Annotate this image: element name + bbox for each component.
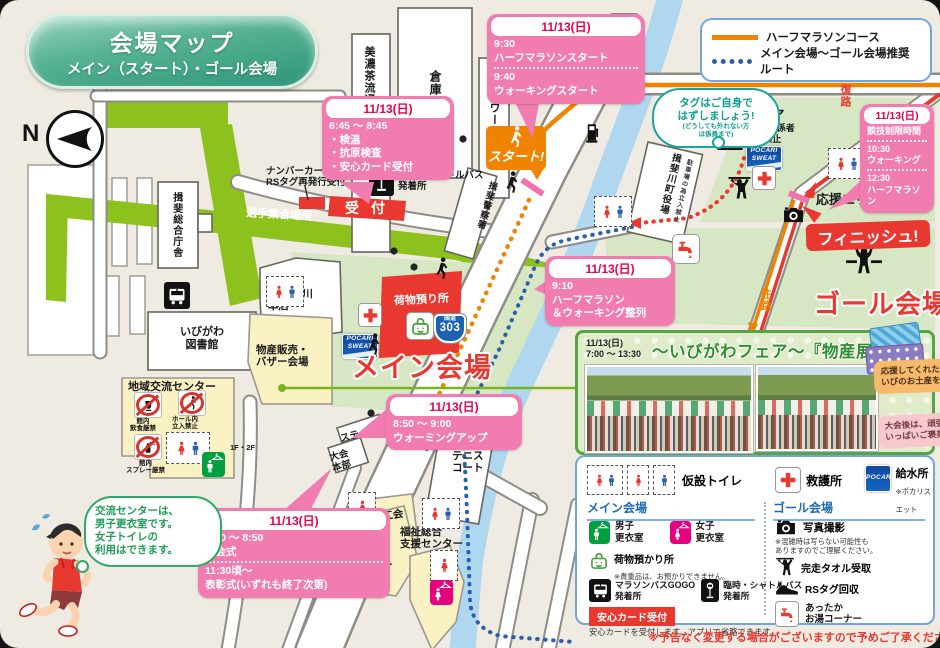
limit-time2: 12:30 (867, 173, 927, 185)
legend-aid-label: 救護所 (806, 472, 842, 489)
pocari-icon: POCARI SWEAT (865, 465, 891, 492)
callout-warmup-date: 11/13(日) (390, 397, 518, 416)
no-spray-icon (134, 434, 162, 460)
fair-photo-1 (585, 365, 753, 453)
finish-banner: フィニッシュ! (806, 220, 931, 251)
separator (205, 561, 383, 563)
start-banner-label: スタート! (488, 146, 544, 165)
page-title-main: 会場マップ (110, 24, 235, 58)
rule2b: 立入禁止 (172, 423, 198, 430)
tag-bubble-line2: はずしましょう! (663, 110, 769, 123)
baggage-map-icon (406, 312, 434, 340)
tennis-line2: コート (452, 462, 484, 474)
tennis-label: テニス コート (452, 450, 484, 475)
limit-event2: ハーフマラソン (867, 185, 927, 208)
route-number: 303 (436, 323, 464, 334)
callout-checkin: 11/13(日) 6:45 ～ 8:45 ・検温 ・抗原検査 ・安心カード受付 (322, 96, 454, 180)
toilet-man-icon (442, 503, 454, 525)
changing-bubble-line4: 利用はできます。 (95, 544, 211, 557)
fair-note-1: 応援してくれた家族や友達に いびのお土産を! (873, 357, 940, 394)
checkin-item3: ・安心カード受付 (329, 161, 447, 175)
photo-note-line2: ありますのでご理解ください。 (775, 546, 877, 555)
pocari-line1: POCARI (866, 474, 891, 481)
camera-legend-icon (775, 519, 797, 536)
no-entry-icon (178, 390, 206, 416)
fair-panel: 11/13(日) 7:00 ～ 13:30 ～いびがわフェア～『物産展』 応援し… (575, 330, 935, 455)
callout-start-times-body: 9:30 ハーフマラソンスタート 9:40 ウォーキングスタート (491, 36, 641, 99)
warmup-event: ウォーミングアップ (393, 432, 515, 446)
cup-glyph (135, 393, 161, 417)
library-line2: 図書館 (186, 339, 219, 351)
photo-note-line1: ※混雑時は写らない可能性も (775, 537, 869, 546)
faucet-glyph (676, 238, 696, 260)
legend-towel-label: 完走タオル受取 (801, 560, 871, 575)
toilet-woman-icon (627, 465, 649, 495)
mens-line1: 男子 (615, 521, 634, 532)
mens-changing-icon (589, 521, 610, 544)
fair-time: 7:00 ～ 13:30 (586, 349, 641, 359)
changing-bubble-line2: 男子更衣室です。 (95, 518, 211, 531)
red-cross-icon (756, 170, 773, 187)
goal-venue-title: ゴール会場 (814, 284, 940, 321)
library-line1: いびがわ (180, 326, 224, 338)
fair-note2-line1: 大会後は、頑張った自分に (884, 416, 940, 431)
lineup-time: 9:10 (552, 280, 668, 294)
changing-room-community (202, 452, 225, 477)
no-entry-label: ホール内 立入禁止 (172, 416, 198, 431)
spray-glyph (135, 435, 161, 459)
toilet-woman-icon (429, 503, 441, 525)
outbound-label: 往路 (758, 288, 771, 318)
callout-start-times-date: 11/13(日) (491, 17, 641, 36)
compass-arrow-icon (55, 124, 95, 154)
page-title-sub: メイン（スタート）・ゴール会場 (67, 58, 277, 79)
aid-station-main (358, 303, 382, 327)
separator (867, 140, 927, 142)
changing-bubble-dot (76, 560, 89, 573)
no-food-icon (134, 392, 162, 418)
no-food-label: 館内 飲食厳禁 (130, 418, 156, 433)
hot-line2: お湯コーナー (805, 614, 862, 625)
mens-line2: 更衣室 (615, 533, 644, 544)
rule2a: ホール内 (172, 416, 198, 423)
legend-photo-label: 写真撮影 (803, 520, 845, 535)
checkin-item1: ・検温 (329, 134, 447, 148)
callout-lineup-date: 11/13(日) (549, 259, 671, 278)
legend-towel-row: 完走タオル受取 (775, 557, 871, 578)
limit-event1: ウォーキング (867, 155, 927, 167)
lineup-event1: ハーフマラソン (552, 294, 668, 308)
tag-bubble-line1: タグはご自身で (663, 97, 769, 110)
legend-baggage-label: 荷物預かり所 (614, 551, 729, 566)
page-title: 会場マップ メイン（スタート）・ゴール会場 (26, 13, 318, 89)
aid-icon (775, 467, 801, 493)
community-floors-label: 1F・2F (230, 444, 255, 453)
shoe-legend-icon (775, 581, 799, 596)
tag-bubble-note1: (どうしても外れない方 (663, 123, 769, 131)
callout-ceremony-date: 11/13(日) (202, 511, 386, 530)
walker-icon-start (502, 170, 522, 195)
runner-icon (505, 126, 527, 148)
legend-photo-row: 写真撮影 (775, 519, 845, 536)
toilet-man-icon (286, 281, 298, 303)
legend-toilet-label: 仮設トイレ (682, 472, 742, 489)
pocari-line1: POCARI (747, 147, 781, 155)
gas-station-icon (585, 122, 601, 143)
start-event2: ウォーキングスタート (494, 85, 638, 99)
marathon-bus-icon (589, 579, 611, 602)
rule3b: スプレー厳禁 (126, 467, 165, 474)
callout-limit-body: 競技制限時間 10:30 ウォーキング 12:30 ハーフマラソン (864, 124, 930, 208)
fair-photo-2 (756, 365, 878, 451)
red-cross-icon (362, 307, 379, 324)
womens-line1: 女子 (696, 521, 715, 532)
recommended-route-label: メイン会場～ゴール会場推奨ルート (760, 45, 920, 77)
bussan-line1: 物産販売・ (256, 344, 309, 356)
toilet-woman-icon (601, 201, 613, 223)
compass-n-label: N (22, 120, 39, 148)
fair-date: 11/13(日) (586, 338, 623, 348)
womens-changing-icon (670, 521, 691, 544)
hanger-icon (211, 453, 224, 461)
legend-toilet-row: 仮設トイレ (587, 465, 742, 495)
legend-hot-label: あったか お湯コーナー (805, 603, 862, 626)
legend-mens-label: 男子 更衣室 (615, 521, 644, 544)
no-spray-label: 館内 スプレー厳禁 (126, 460, 165, 475)
fair-note2-line2: いっぱいご褒美を (885, 429, 940, 443)
fair-note1-line1: 応援してくれた家族や友達に (881, 362, 940, 376)
callout-checkin-date: 11/13(日) (326, 99, 450, 118)
shuttle-stop-legend-icon (701, 579, 719, 602)
tennis-line1: テニス (452, 450, 484, 462)
walker-glyph (179, 391, 205, 415)
legend-goal-heading-row: ゴール会場 (773, 499, 925, 521)
reception-banner: 受付 (345, 200, 397, 217)
toilet-yakuba (594, 196, 632, 227)
towel-person-icon (727, 176, 752, 202)
changing-room-fukushi (430, 580, 453, 605)
shuttle-line2: 発着所 (398, 181, 427, 192)
callout-warmup: 11/13(日) 8:50 ～ 9:00 ウォーミングアップ (386, 394, 522, 450)
card-badge: 安心カード受付 (589, 607, 675, 626)
callout-limit: 11/13(日) 競技制限時間 10:30 ウォーキング 12:30 ハーフマラ… (860, 104, 934, 213)
half-course-line-icon (712, 35, 758, 40)
fukushi-label: 福祉総合 支援センター (400, 526, 463, 551)
toilet-fukushi-1 (422, 498, 460, 529)
toilet-man-icon (653, 465, 675, 495)
hot-water-map-icon (672, 234, 700, 264)
legend-panel: 仮設トイレ 救護所 POCARI SWEAT 給水所 ※ポカリスエット メイン会… (575, 455, 935, 625)
towel-legend-icon (775, 557, 795, 578)
recommended-route-line-icon (712, 59, 752, 64)
main-venue-title: メイン会場 (352, 346, 492, 385)
legend-womens-label: 女子 更衣室 (696, 521, 725, 544)
legend-goal-heading: ゴール会場 (773, 501, 833, 515)
fair-when: 11/13(日) 7:00 ～ 13:30 (586, 338, 641, 361)
bus2-line2: 発着所 (723, 591, 749, 601)
callout-warmup-body: 8:50 ～ 9:00 ウォーミングアップ (390, 416, 518, 445)
toilet-woman-icon (273, 281, 285, 303)
limit-heading: 競技制限時間 (867, 126, 927, 138)
rule1a: 館内 (137, 418, 150, 425)
legend-photo-note: ※混雑時は写らない可能性も ありますのでご理解ください。 (775, 537, 877, 555)
toilet-ja (266, 276, 304, 307)
legend-water-label: 給水所 (896, 465, 933, 481)
rule3a: 館内 (139, 460, 152, 467)
toilet-man-icon (614, 201, 626, 223)
legend-mens: 男子 更衣室 (589, 521, 644, 544)
changing-bubble-line1: 交流センターは、 (95, 505, 211, 518)
legend-hot-row: あったか お湯コーナー (775, 601, 862, 627)
changing-bubble: 交流センターは、 男子更衣室です。 女子トイレの 利用はできます。 (84, 496, 222, 567)
bus1-line2: 発着所 (615, 591, 641, 601)
fair-note-2: 大会後は、頑張った自分に いっぱいご褒美を (877, 410, 940, 449)
callout-lineup: 11/13(日) 9:10 ハーフマラソン ＆ウォーキング整列 (545, 256, 675, 326)
fair-title: ～いびがわフェア～『物産展』 (652, 338, 890, 362)
bus1-line1: マラソンバスGOGO (615, 580, 695, 590)
building-bussan-label: 物産販売・ バザー会場 (256, 344, 309, 369)
venue-map: 会場マップ メイン（スタート）・ゴール会場 N ハーフマラソンコース メイン会場… (0, 0, 940, 648)
start-banner: スタート! (486, 126, 546, 170)
hot-line1: あったか (805, 603, 843, 614)
fukushi-line2: 支援センター (400, 538, 463, 550)
legend-bus-row: マラソンバスGOGO 発着所 臨時・シャトルバス 発着所 (589, 579, 802, 602)
bussan-line2: バザー会場 (256, 356, 309, 368)
rule1b: 飲食厳禁 (130, 425, 156, 432)
bus-glyph (167, 286, 187, 306)
baggage-icon (589, 551, 609, 571)
separator (867, 169, 927, 171)
building-chosha-label: 揖斐総合庁舎 (170, 192, 182, 262)
bundle-glyph (410, 316, 431, 337)
legend-womens: 女子 更衣室 (670, 521, 725, 544)
toilet-woman-icon (438, 554, 451, 577)
legend-bus1: マラソンバスGOGO 発着所 (589, 579, 695, 602)
hot-water-icon (775, 601, 799, 627)
legend-rstag-row: RSタグ回収 (775, 581, 859, 596)
route-legend-recommended: メイン会場～ゴール会場推奨ルート (712, 45, 920, 77)
callout-ceremony: 11/13(日) 8:20 ～ 8:50 開会式 11:30頃～ 表彰式(いずれ… (198, 508, 390, 598)
ceremony-event1: 開会式 (205, 546, 383, 560)
start-time1: 9:30 (494, 38, 638, 52)
aid-station-goal (752, 166, 776, 190)
tag-bubble-dot (712, 136, 725, 149)
route-303-shield-main: 国道 303 (434, 314, 466, 343)
toilet-man-icon (848, 153, 860, 175)
start-time2: 9:40 (494, 71, 638, 85)
half-course-label: ハーフマラソンコース (766, 29, 880, 45)
lineup-event2: ＆ウォーキング整列 (552, 307, 668, 321)
toilet-fukushi-2 (430, 550, 458, 581)
hanger-icon (439, 581, 452, 589)
toilet-man-icon (189, 437, 202, 460)
start-event1: ハーフマラソンスタート (494, 52, 638, 66)
walker-icon-1 (432, 256, 452, 281)
return-label: 復路 (838, 84, 851, 114)
toilet-woman-icon (835, 153, 847, 175)
route-legend-half: ハーフマラソンコース (712, 29, 920, 45)
ceremony-time2: 11:30頃～ (205, 565, 383, 579)
checkin-item2: ・抗原検査 (329, 147, 447, 161)
route-legend: ハーフマラソンコース メイン会場～ゴール会場推奨ルート (700, 18, 932, 82)
womens-line2: 更衣室 (696, 533, 725, 544)
callout-start-times: 11/13(日) 9:30 ハーフマラソンスタート 9:40 ウォーキングスター… (487, 14, 645, 104)
compass-icon (46, 110, 104, 168)
callout-checkin-body: 6:45 ～ 8:45 ・検温 ・抗原検査 ・安心カード受付 (326, 118, 450, 175)
legend-aid-row: 救護所 (775, 467, 842, 493)
building-library-label: いびがわ 図書館 (152, 326, 252, 352)
callout-lineup-body: 9:10 ハーフマラソン ＆ウォーキング整列 (549, 278, 671, 321)
finisher-icon (846, 246, 882, 278)
ceremony-event2: 表彰式(いずれも終了次第) (205, 579, 383, 593)
bus-icon-chosha (164, 282, 190, 309)
separator (494, 67, 638, 69)
limit-time1: 10:30 (867, 144, 927, 156)
ceremony-time1: 8:20 ～ 8:50 (205, 532, 383, 546)
legend-changing-row: 男子 更衣室 女子 更衣室 (589, 521, 724, 544)
checkin-time: 6:45 ～ 8:45 (329, 120, 447, 134)
toilet-woman-icon (175, 437, 188, 460)
fair-note1-line2: いびのお土産を! (881, 375, 940, 387)
legend-main-heading-row: メイン会場 (587, 499, 755, 521)
toilet-pair-icon (587, 465, 623, 495)
callout-limit-date: 11/13(日) (864, 107, 930, 124)
changing-bubble-line3: 女子トイレの (95, 531, 211, 544)
legend-bus1-label: マラソンバスGOGO 発着所 (615, 580, 695, 601)
legend-main-heading: メイン会場 (587, 501, 647, 515)
legend-rstag-label: RSタグ回収 (805, 581, 859, 596)
footnote: ※予告なく変更する場合がございますので予めご了承ください。 (648, 629, 940, 645)
warmup-time: 8:50 ～ 9:00 (393, 418, 515, 432)
callout-ceremony-body: 8:20 ～ 8:50 開会式 11:30頃～ 表彰式(いずれも終了次第) (202, 530, 386, 593)
